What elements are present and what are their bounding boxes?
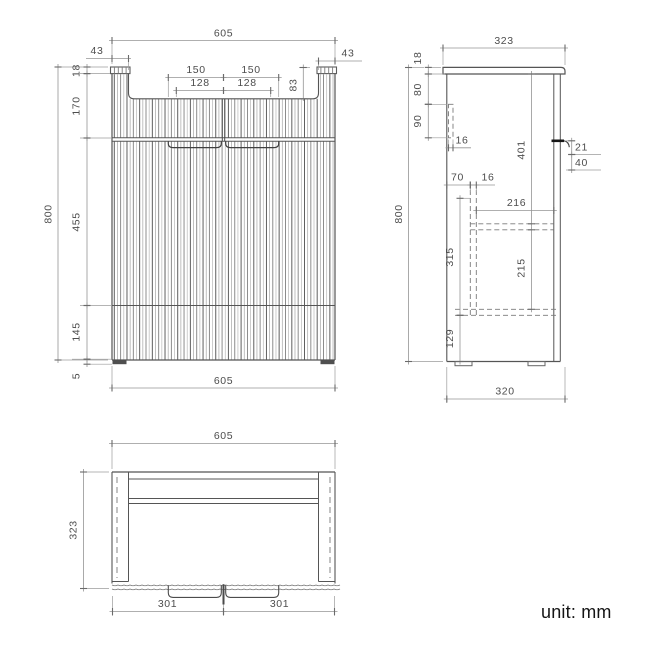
dimension-front-handle-inner-left: 128: [190, 77, 209, 89]
dimension-side-handle-height: 40: [575, 157, 588, 169]
dimension-front-recess-depth: 83: [288, 79, 300, 92]
dimension-side-cap-thickness: 18: [412, 52, 424, 65]
dimension-plan-depth: 323: [68, 520, 80, 539]
dimension-front-base-height: 145: [71, 322, 83, 341]
unit-label: unit: mm: [541, 602, 612, 623]
side-view: [443, 67, 569, 365]
dimension-plan-door-width-left: 301: [158, 598, 177, 610]
cabinet-dimension-drawing: 6054343150150128128838001817045514556053…: [0, 0, 650, 650]
dimension-side-partition-thickness: 16: [482, 172, 495, 184]
dimension-side-depth-top: 323: [494, 35, 513, 47]
dimension-front-width-top: 605: [214, 28, 233, 40]
dimension-front-post-width-right: 43: [342, 48, 355, 60]
dimension-front-width-bottom: 605: [214, 375, 233, 387]
dimension-front-upper-height: 170: [71, 96, 83, 115]
dimension-front-door-height: 455: [71, 212, 83, 231]
dimension-front-height-overall: 800: [43, 204, 55, 223]
technical-drawing-sheet: 6054343150150128128838001817045514556053…: [0, 0, 650, 650]
dimension-side-rail-thickness: 16: [456, 135, 469, 147]
front-view: [111, 67, 337, 364]
dimension-front-top-cap: 18: [71, 64, 83, 77]
dimension-front-handle-inner-right: 128: [237, 77, 256, 89]
dimension-annotations: 6054343150150128128838001817045514556053…: [43, 28, 588, 616]
dimension-side-back-gap: 80: [412, 83, 424, 96]
dimension-side-rail-height: 90: [412, 115, 424, 128]
dimension-side-partition-offset: 70: [451, 172, 464, 184]
dimension-front-handle-outer-left: 150: [186, 64, 205, 76]
dimension-side-shelf-gap: 215: [516, 258, 528, 277]
dimension-side-door-height: 401: [516, 140, 528, 159]
dimension-side-base-height: 129: [444, 329, 456, 348]
dimension-side-shelf-span: 216: [507, 197, 526, 209]
dimension-front-handle-outer-right: 150: [241, 64, 260, 76]
dimension-side-partition-height: 315: [444, 247, 456, 266]
dimension-side-depth-bottom: 320: [495, 386, 514, 398]
dimension-plan-door-width-right: 301: [270, 598, 289, 610]
dimension-plan-width-top: 605: [214, 430, 233, 442]
plan-view: [112, 472, 340, 605]
dimension-side-handle-depth: 21: [575, 142, 588, 154]
dimension-front-post-width-left: 43: [91, 45, 104, 57]
dimension-front-foot-height: 5: [71, 373, 83, 379]
dimension-side-height-overall: 800: [393, 204, 405, 223]
